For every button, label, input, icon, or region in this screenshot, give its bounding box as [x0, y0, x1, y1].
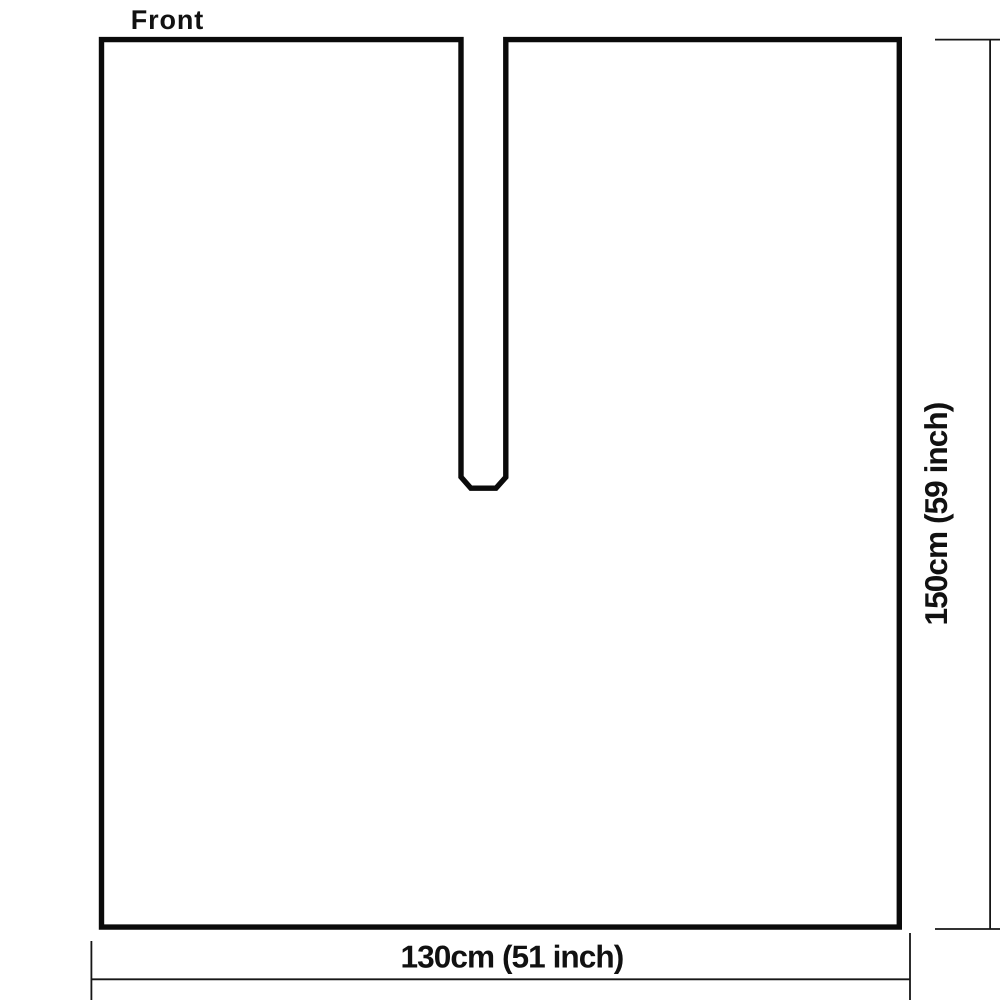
svg-text:Front: Front	[131, 5, 204, 35]
svg-text:130cm (51 inch): 130cm (51 inch)	[401, 939, 624, 975]
svg-text:150cm (59 inch): 150cm (59 inch)	[918, 403, 954, 626]
